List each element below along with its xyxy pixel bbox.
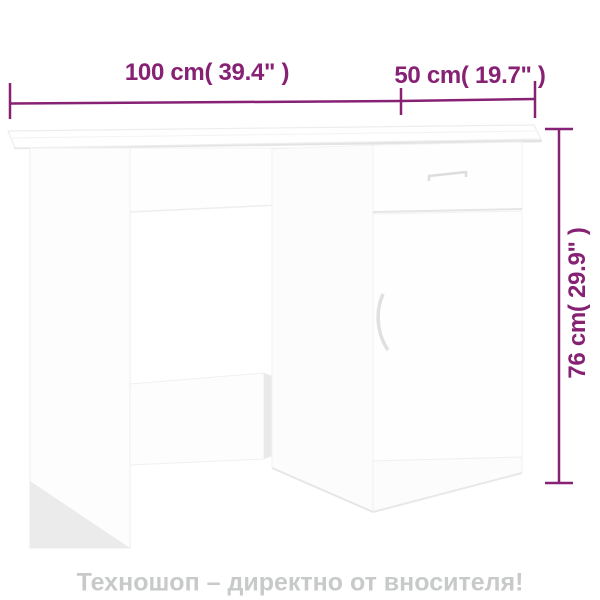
cabinet-side-panel (272, 145, 373, 512)
desk (8, 125, 542, 548)
depth-dimension-label: 50 cm( 19.7" ) (394, 62, 545, 90)
drawer-front (373, 142, 522, 212)
store-watermark-text: Техношоп – директно от вносителя! (77, 569, 524, 598)
width-dimension-label: 100 cm( 39.4" ) (125, 59, 289, 87)
height-dimension-label: 76 cm( 29.9" ) (564, 227, 592, 378)
modesty-panel (130, 373, 264, 465)
product-dimension-diagram: 100 cm( 39.4" ) 50 cm( 19.7" ) 76 cm( 29… (0, 0, 600, 600)
desk-illustration (0, 0, 600, 600)
cabinet-door (373, 211, 522, 461)
modesty-panel-edge-shade (264, 373, 272, 459)
cabinet-base (373, 457, 522, 512)
top-dimension-rule (10, 99, 535, 104)
left-leg-panel (30, 148, 130, 548)
